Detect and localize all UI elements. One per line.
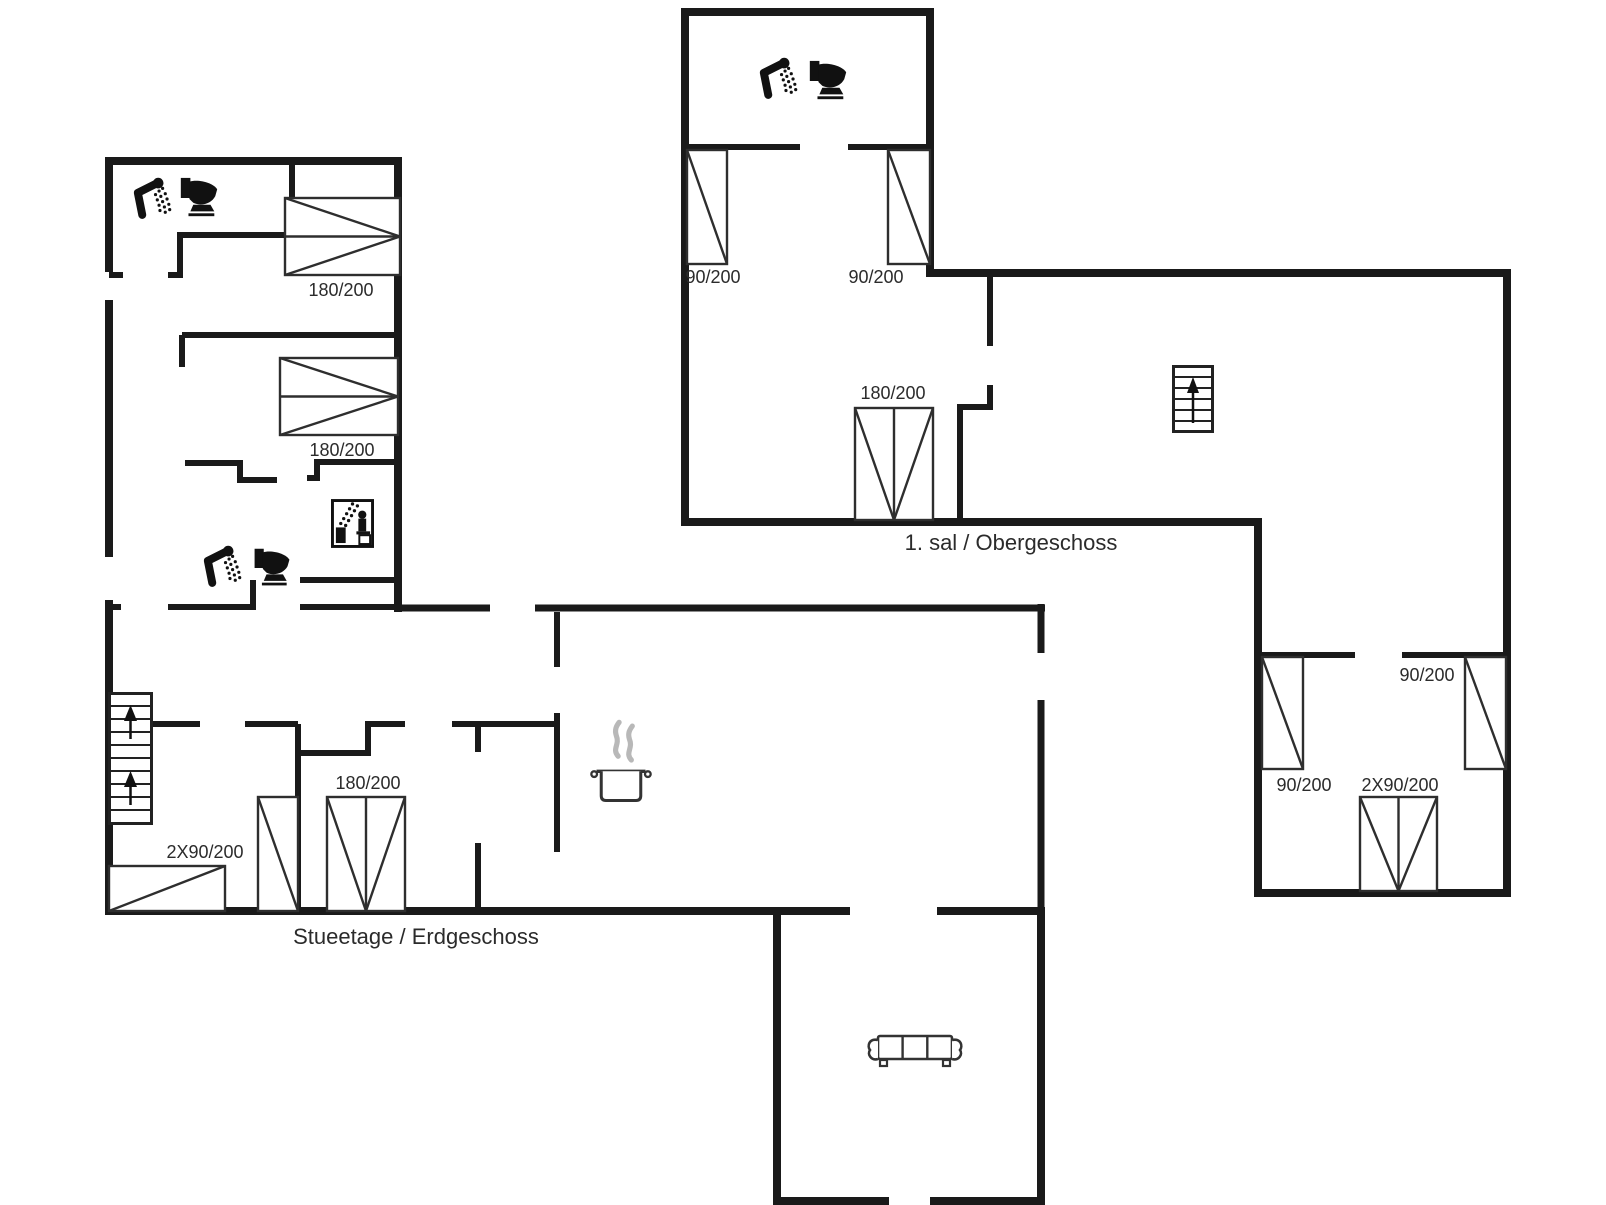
floor-plan-svg: 180/200180/2002X90/200180/200Stueetage /… (0, 0, 1606, 1205)
staircase-icon (109, 694, 152, 824)
dimension-label: 90/200 (848, 267, 903, 287)
sofa-icon (869, 1036, 962, 1066)
dimension-label: 180/200 (335, 773, 400, 793)
bed (280, 358, 398, 435)
toilet-icon (181, 178, 217, 216)
floor-label: Stueetage / Erdgeschoss (293, 924, 539, 949)
shower-icon (208, 546, 241, 583)
dimension-label: 90/200 (1276, 775, 1331, 795)
toilet-icon (255, 549, 290, 586)
shower-icon (764, 58, 797, 95)
dimension-label: 90/200 (685, 267, 740, 287)
staircase-icon (1173, 367, 1213, 432)
floor-label: 1. sal / Obergeschoss (905, 530, 1118, 555)
shower-icon (138, 178, 171, 215)
bed (855, 408, 933, 520)
bed (1262, 657, 1303, 769)
ground-floor: 180/200180/2002X90/200180/200Stueetage /… (105, 157, 1045, 1205)
dimension-label: 2X90/200 (166, 842, 243, 862)
dimension-label: 180/200 (309, 440, 374, 460)
bed (687, 150, 727, 264)
dimension-label: 2X90/200 (1361, 775, 1438, 795)
toilet-icon (810, 61, 846, 99)
dimension-label: 180/200 (308, 280, 373, 300)
bed (327, 797, 405, 911)
bed (1360, 797, 1437, 891)
bed (1465, 657, 1506, 769)
bed (888, 150, 930, 264)
bed (109, 866, 225, 911)
dimension-label: 180/200 (860, 383, 925, 403)
sauna-icon (332, 501, 372, 547)
floor-plan-canvas: 180/200180/2002X90/200180/200Stueetage /… (0, 0, 1606, 1205)
dimension-label: 90/200 (1399, 665, 1454, 685)
first-floor: 90/20090/200180/20090/20090/2002X90/2001… (681, 8, 1511, 897)
bed (285, 198, 400, 275)
bed (258, 797, 298, 911)
cooking-pot-icon (591, 722, 650, 800)
